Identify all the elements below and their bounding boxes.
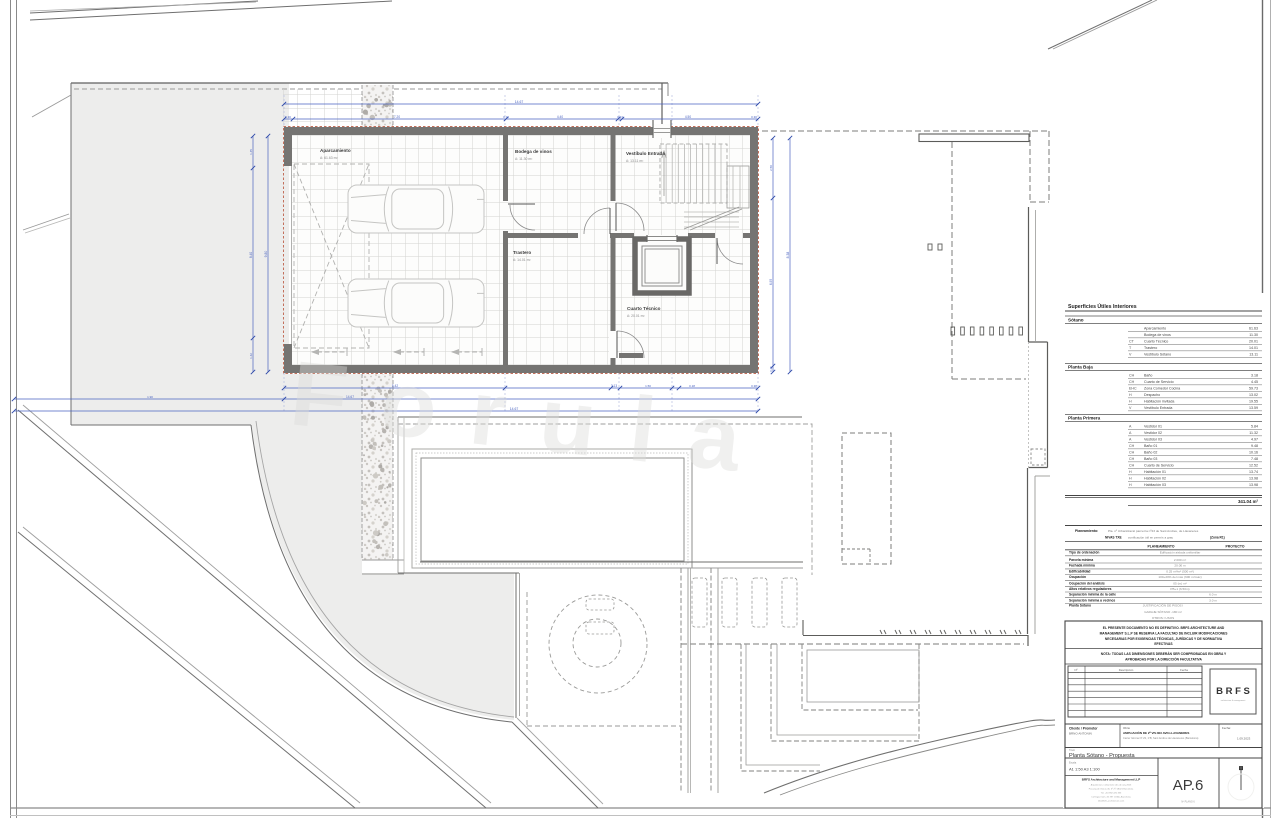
svg-text:Ocupación del análisis: Ocupación del análisis — [1069, 581, 1105, 585]
svg-text:CH: CH — [1129, 451, 1135, 455]
svg-text:A1 1:50 A3 1:100: A1 1:50 A3 1:100 — [1069, 767, 1100, 772]
svg-text:59.73: 59.73 — [1249, 387, 1258, 391]
svg-text:13.11: 13.11 — [1249, 353, 1258, 357]
svg-text:Pla. nº Urbanització parcel·la: Pla. nº Urbanització parcel·la nº23 de S… — [1108, 529, 1199, 533]
svg-text:2.50: 2.50 — [769, 165, 773, 171]
svg-text:20.01: 20.01 — [1249, 340, 1258, 344]
svg-text:NOTA: TODAS LAS DIMENSIONES D: NOTA: TODAS LAS DIMENSIONES DEBERÁN SER … — [1101, 651, 1227, 656]
svg-text:Separación mínima de la calle: Separación mínima de la calle — [1069, 593, 1116, 597]
svg-text:Planta Primera: Planta Primera — [1068, 416, 1101, 421]
svg-text:Bodega de vinos: Bodega de vinos — [1144, 333, 1171, 337]
svg-text:Obra:: Obra: — [1123, 726, 1130, 730]
svg-text:A: 20.01 m²: A: 20.01 m² — [627, 314, 645, 318]
svg-text:CT: CT — [1129, 340, 1135, 344]
svg-text:Superficies Útiles Interiores: Superficies Útiles Interiores — [1068, 303, 1137, 310]
svg-text:Cuarto de Servicio: Cuarto de Servicio — [1144, 464, 1174, 468]
svg-text:3.0 m: 3.0 m — [1209, 598, 1217, 602]
svg-text:Baño: Baño — [1144, 374, 1152, 378]
svg-text:NECESARIAS POR EXIGENCIAS TÉCN: NECESARIAS POR EXIGENCIAS TÉCNICAS, JURÍ… — [1105, 636, 1223, 641]
svg-text:Baño 01: Baño 01 — [1144, 444, 1157, 448]
svg-text:Cliente / Promotor: Cliente / Promotor — [1069, 727, 1098, 731]
svg-text:0.30: 0.30 — [751, 115, 757, 119]
svg-text:MANAGEMENT S.L.P SE RESERVA LA: MANAGEMENT S.L.P SE RESERVA LA FACULTAD … — [1100, 631, 1229, 635]
svg-text:APROBADAS POR LA DIRECCIÓN FAC: APROBADAS POR LA DIRECCIÓN FACULTATIVA — [1125, 656, 1202, 661]
svg-text:AP.6: AP.6 — [1173, 777, 1204, 794]
svg-text:A: 61.63 m²: A: 61.63 m² — [320, 156, 338, 160]
svg-text:Separación mínima a vecinos: Separación mínima a vecinos — [1069, 598, 1115, 602]
svg-text:100+20% del máx (600 m²máx): 100+20% del máx (600 m²máx) — [1158, 575, 1201, 579]
svg-text:BRNO ANTONIN: BRNO ANTONIN — [1069, 732, 1092, 736]
svg-text:Planeamiento:: Planeamiento: — [1075, 529, 1098, 533]
svg-text:Tipo de ordenación: Tipo de ordenación — [1069, 551, 1099, 555]
svg-text:7.48: 7.48 — [1251, 457, 1258, 461]
svg-text:Aparcamiento: Aparcamiento — [320, 148, 351, 153]
svg-text:H: H — [1129, 393, 1132, 397]
svg-text:2.000 m²: 2.000 m² — [1174, 558, 1186, 562]
svg-text:A: 13.11 m²: A: 13.11 m² — [626, 159, 644, 163]
svg-text:CH: CH — [1129, 380, 1135, 384]
svg-text:20.00 m: 20.00 m — [1174, 564, 1186, 568]
svg-text:4.97: 4.97 — [1251, 438, 1258, 442]
svg-text:JUSTIFICACIÓN DE PISOS I: JUSTIFICACIÓN DE PISOS I — [1143, 603, 1184, 608]
svg-text:Escala: Escala — [1069, 762, 1077, 765]
svg-text:Trastero: Trastero — [1144, 346, 1157, 350]
svg-text:1.90: 1.90 — [147, 395, 153, 399]
svg-text:Baño 03: Baño 03 — [1144, 457, 1157, 461]
svg-text:13.98: 13.98 — [1249, 477, 1258, 481]
svg-text:3.18: 3.18 — [1251, 374, 1258, 378]
svg-text:PLANEAMIENTO: PLANEAMIENTO — [1147, 545, 1174, 549]
svg-text:6.0 m: 6.0 m — [1209, 593, 1217, 597]
svg-text:Baño 02: Baño 02 — [1144, 451, 1157, 455]
svg-text:11.32: 11.32 — [1249, 431, 1258, 435]
svg-text:5.84: 5.84 — [1251, 425, 1258, 429]
svg-text:Título: Título — [1069, 749, 1076, 752]
svg-text:Vestidor 01: Vestidor 01 — [1144, 425, 1162, 429]
svg-text:14.67: 14.67 — [515, 100, 524, 104]
svg-text:1.45: 1.45 — [249, 149, 253, 155]
svg-text:CH: CH — [1129, 457, 1135, 461]
svg-text:Trastero: Trastero — [513, 250, 531, 255]
svg-text:4.50: 4.50 — [685, 115, 691, 119]
svg-text:A: 11.30 m²: A: 11.30 m² — [515, 157, 533, 161]
svg-text:0.25 m²/m² (500 m²): 0.25 m²/m² (500 m²) — [1166, 569, 1194, 573]
svg-text:8.40: 8.40 — [249, 252, 253, 258]
svg-text:13.74: 13.74 — [1249, 470, 1258, 474]
svg-text:19.55: 19.55 — [1249, 400, 1258, 404]
svg-text:7.20: 7.20 — [394, 115, 400, 119]
svg-text:12.52: 12.52 — [1249, 464, 1258, 468]
svg-text:0.30: 0.30 — [285, 115, 291, 119]
svg-text:CH: CH — [1129, 374, 1135, 378]
svg-text:0.13: 0.13 — [503, 115, 509, 119]
svg-text:PB+1 (6.50m): PB+1 (6.50m) — [1170, 587, 1189, 591]
svg-text:Parcela mínima: Parcela mínima — [1069, 558, 1093, 562]
svg-text:Fecha: Fecha — [1180, 668, 1188, 672]
svg-text:Vestíbulo Entrada: Vestíbulo Entrada — [626, 151, 665, 156]
svg-text:Arquitectura i urbanisme des d: Arquitectura i urbanisme des de any 2003 — [1091, 784, 1132, 787]
svg-text:zonificación útil en permís a: zonificación útil en permís a grau — [1128, 536, 1174, 540]
svg-text:B R F S: B R F S — [1216, 686, 1250, 697]
svg-text:Planta Sótano: Planta Sótano — [1069, 604, 1091, 608]
svg-text:NIVAS TXE: NIVAS TXE — [1105, 536, 1122, 540]
svg-text:Sótano: Sótano — [1068, 318, 1084, 323]
svg-text:1.42: 1.42 — [249, 353, 253, 359]
svg-text:Edificación aislada unifamilia: Edificación aislada unifamiliar — [1160, 551, 1201, 555]
svg-text:Bodega de vinos: Bodega de vinos — [515, 149, 552, 154]
svg-text:AMPLIACIÓN DE 2ª VIV.303 AVD.L: AMPLIACIÓN DE 2ª VIV.303 AVD.LLAVANERES — [1123, 730, 1189, 735]
svg-text:1.09.2023: 1.09.2023 — [1237, 737, 1251, 741]
svg-text:0.38: 0.38 — [751, 384, 757, 388]
svg-text:CH: CH — [1129, 464, 1135, 468]
svg-text:13.02: 13.02 — [1249, 393, 1258, 397]
svg-text:0.25: 0.25 — [769, 366, 773, 372]
svg-text:Col·legiat núm. 45.787 COAC-Ba: Col·legiat núm. 45.787 COAC-Barcelona — [1091, 796, 1131, 799]
svg-text:Cuarto de Servicio: Cuarto de Servicio — [1144, 380, 1174, 384]
svg-text:BRFS Architecture and Manageme: BRFS Architecture and Management LLP — [1082, 778, 1140, 782]
svg-text:Cuarto Técnico: Cuarto Técnico — [1144, 340, 1168, 344]
svg-text:Habitación invitada: Habitación invitada — [1144, 400, 1174, 404]
svg-text:Nº PLANO 6: Nº PLANO 6 — [1181, 800, 1195, 804]
svg-text:11.30: 11.30 — [1249, 333, 1258, 337]
svg-text:Vestidor 02: Vestidor 02 — [1144, 431, 1162, 435]
svg-text:H: H — [1129, 477, 1132, 481]
svg-text:Habitación 03: Habitación 03 — [1144, 483, 1166, 487]
svg-text:61.63: 61.63 — [1249, 327, 1258, 331]
svg-text:Vestidor 03: Vestidor 03 — [1144, 438, 1162, 442]
svg-text:05 (m) m²: 05 (m) m² — [1173, 581, 1186, 585]
svg-text:Planta Baja: Planta Baja — [1068, 365, 1093, 370]
svg-text:CH: CH — [1129, 444, 1135, 448]
svg-text:9.48: 9.48 — [1251, 444, 1258, 448]
svg-text:(Zona R1): (Zona R1) — [1210, 536, 1225, 540]
svg-text:Altos relativos reguladores: Altos relativos reguladores — [1069, 587, 1112, 591]
svg-text:Cuarto Técnico: Cuarto Técnico — [627, 306, 661, 311]
svg-text:4.40: 4.40 — [557, 115, 563, 119]
svg-text:Carrer Girona Nº 23, 1ºB, Sant: Carrer Girona Nº 23, 1ºB, Sant Andreu de… — [1123, 736, 1199, 740]
svg-text:H: H — [1129, 483, 1132, 487]
svg-text:EHC: EHC — [1129, 387, 1137, 391]
svg-text:EFECTIVAS: EFECTIVAS — [1154, 642, 1173, 646]
svg-text:0.13: 0.13 — [617, 115, 623, 119]
svg-text:Passeig de Gràcia 45, 3º 2ª, 0: Passeig de Gràcia 45, 3º 2ª, 08021 Barce… — [1089, 788, 1134, 791]
svg-text:Despacho: Despacho — [1144, 393, 1160, 397]
svg-text:13.59: 13.59 — [1249, 406, 1258, 410]
svg-text:OTROS I USOS: OTROS I USOS — [1152, 616, 1174, 620]
svg-text:Zona Comedor Cocina: Zona Comedor Cocina — [1144, 387, 1180, 391]
svg-text:13.98: 13.98 — [1249, 483, 1258, 487]
svg-text:Habitación 01: Habitación 01 — [1144, 470, 1166, 474]
svg-text:PROYECTO: PROYECTO — [1226, 545, 1245, 549]
svg-text:6.95: 6.95 — [769, 279, 773, 285]
svg-text:Aparcamiento: Aparcamiento — [1144, 327, 1166, 331]
svg-text:14.01: 14.01 — [1249, 346, 1258, 350]
svg-text:EL PRESENTE DOCUMENTO NO ES DE: EL PRESENTE DOCUMENTO NO ES DEFINITIVO. … — [1103, 626, 1225, 630]
svg-text:Edificabilidad: Edificabilidad — [1069, 569, 1090, 573]
svg-text:341.04 m²: 341.04 m² — [1238, 499, 1259, 504]
svg-text:8.38: 8.38 — [786, 252, 790, 259]
svg-text:Vestíbulo Sótano: Vestíbulo Sótano — [1144, 353, 1171, 357]
svg-text:GARAJE SÓTANO -180 m²: GARAJE SÓTANO -180 m² — [1144, 609, 1182, 614]
svg-text:A: 14.01 m²: A: 14.01 m² — [513, 258, 531, 262]
svg-text:Ocupación: Ocupación — [1069, 575, 1086, 579]
svg-text:Habitación 02: Habitación 02 — [1144, 477, 1166, 481]
svg-text:H: H — [1129, 400, 1132, 404]
svg-text:info@brfs-architecture.com: info@brfs-architecture.com — [1098, 800, 1124, 803]
svg-text:architecture & management: architecture & management — [1221, 699, 1246, 702]
svg-text:9.80: 9.80 — [264, 251, 268, 258]
svg-text:10.16: 10.16 — [1249, 451, 1258, 455]
svg-text:Fachada mínima: Fachada mínima — [1069, 564, 1095, 568]
svg-text:Nº: Nº — [1074, 668, 1077, 672]
svg-text:H: H — [1129, 470, 1132, 474]
svg-text:Vestíbulo Entrada: Vestíbulo Entrada — [1144, 406, 1172, 410]
svg-text:4.45: 4.45 — [1251, 380, 1258, 384]
svg-text:Fecha:: Fecha: — [1222, 726, 1231, 730]
svg-text:Descripción: Descripción — [1119, 668, 1134, 672]
svg-text:Tel. +34 932 220 333: Tel. +34 932 220 333 — [1101, 793, 1122, 795]
